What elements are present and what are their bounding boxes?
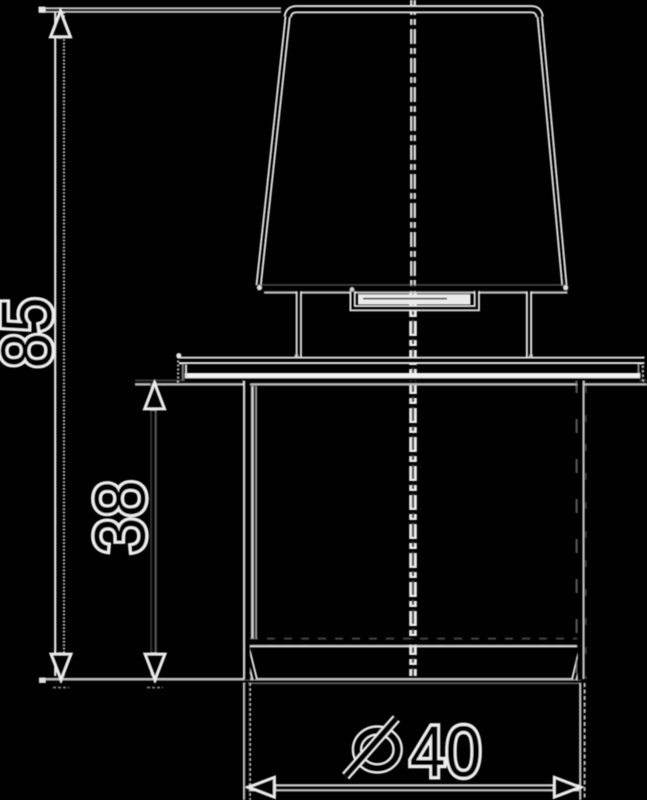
svg-text:38: 38 (81, 480, 161, 555)
svg-text:40: 40 (410, 713, 482, 793)
svg-text:85: 85 (0, 297, 68, 369)
